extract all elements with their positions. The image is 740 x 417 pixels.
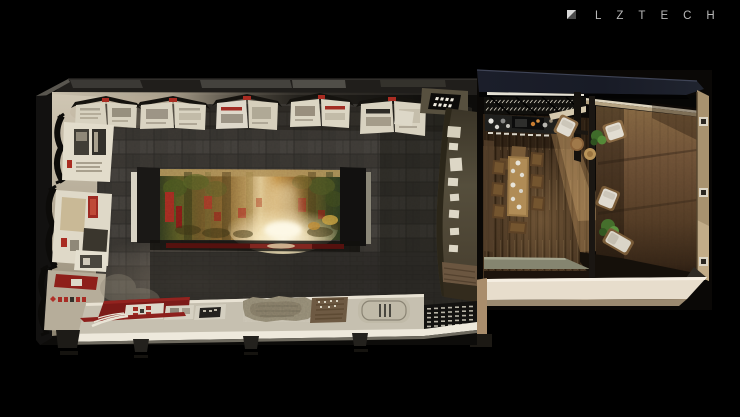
svg-text:LZTECH: LZTECH — [595, 10, 730, 22]
